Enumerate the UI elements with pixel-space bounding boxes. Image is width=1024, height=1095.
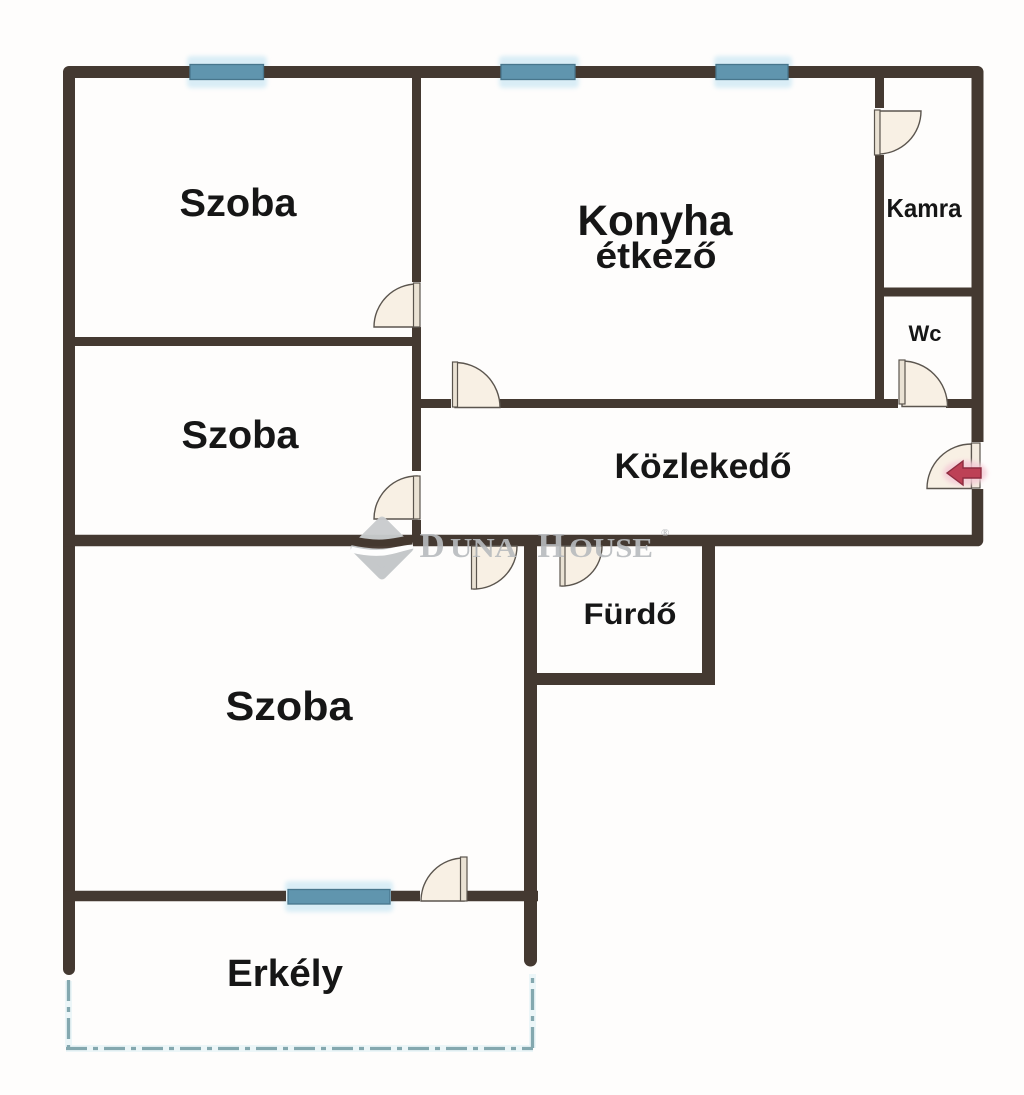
- svg-text:Erkély: Erkély: [227, 953, 343, 995]
- svg-text:Szoba: Szoba: [182, 414, 299, 457]
- svg-text:®: ®: [661, 527, 669, 539]
- svg-text:étkező: étkező: [596, 235, 717, 276]
- svg-text:Wc: Wc: [909, 321, 942, 346]
- svg-text:OUSE: OUSE: [569, 533, 653, 563]
- svg-text:Szoba: Szoba: [180, 182, 297, 225]
- svg-text:H: H: [538, 526, 565, 565]
- svg-text:D: D: [420, 526, 445, 565]
- svg-text:Szoba: Szoba: [226, 683, 354, 729]
- svg-text:Közlekedő: Közlekedő: [615, 447, 792, 486]
- svg-text:Kamra: Kamra: [887, 193, 962, 223]
- svg-text:UNA: UNA: [450, 533, 518, 563]
- svg-text:Fürdő: Fürdő: [584, 598, 677, 631]
